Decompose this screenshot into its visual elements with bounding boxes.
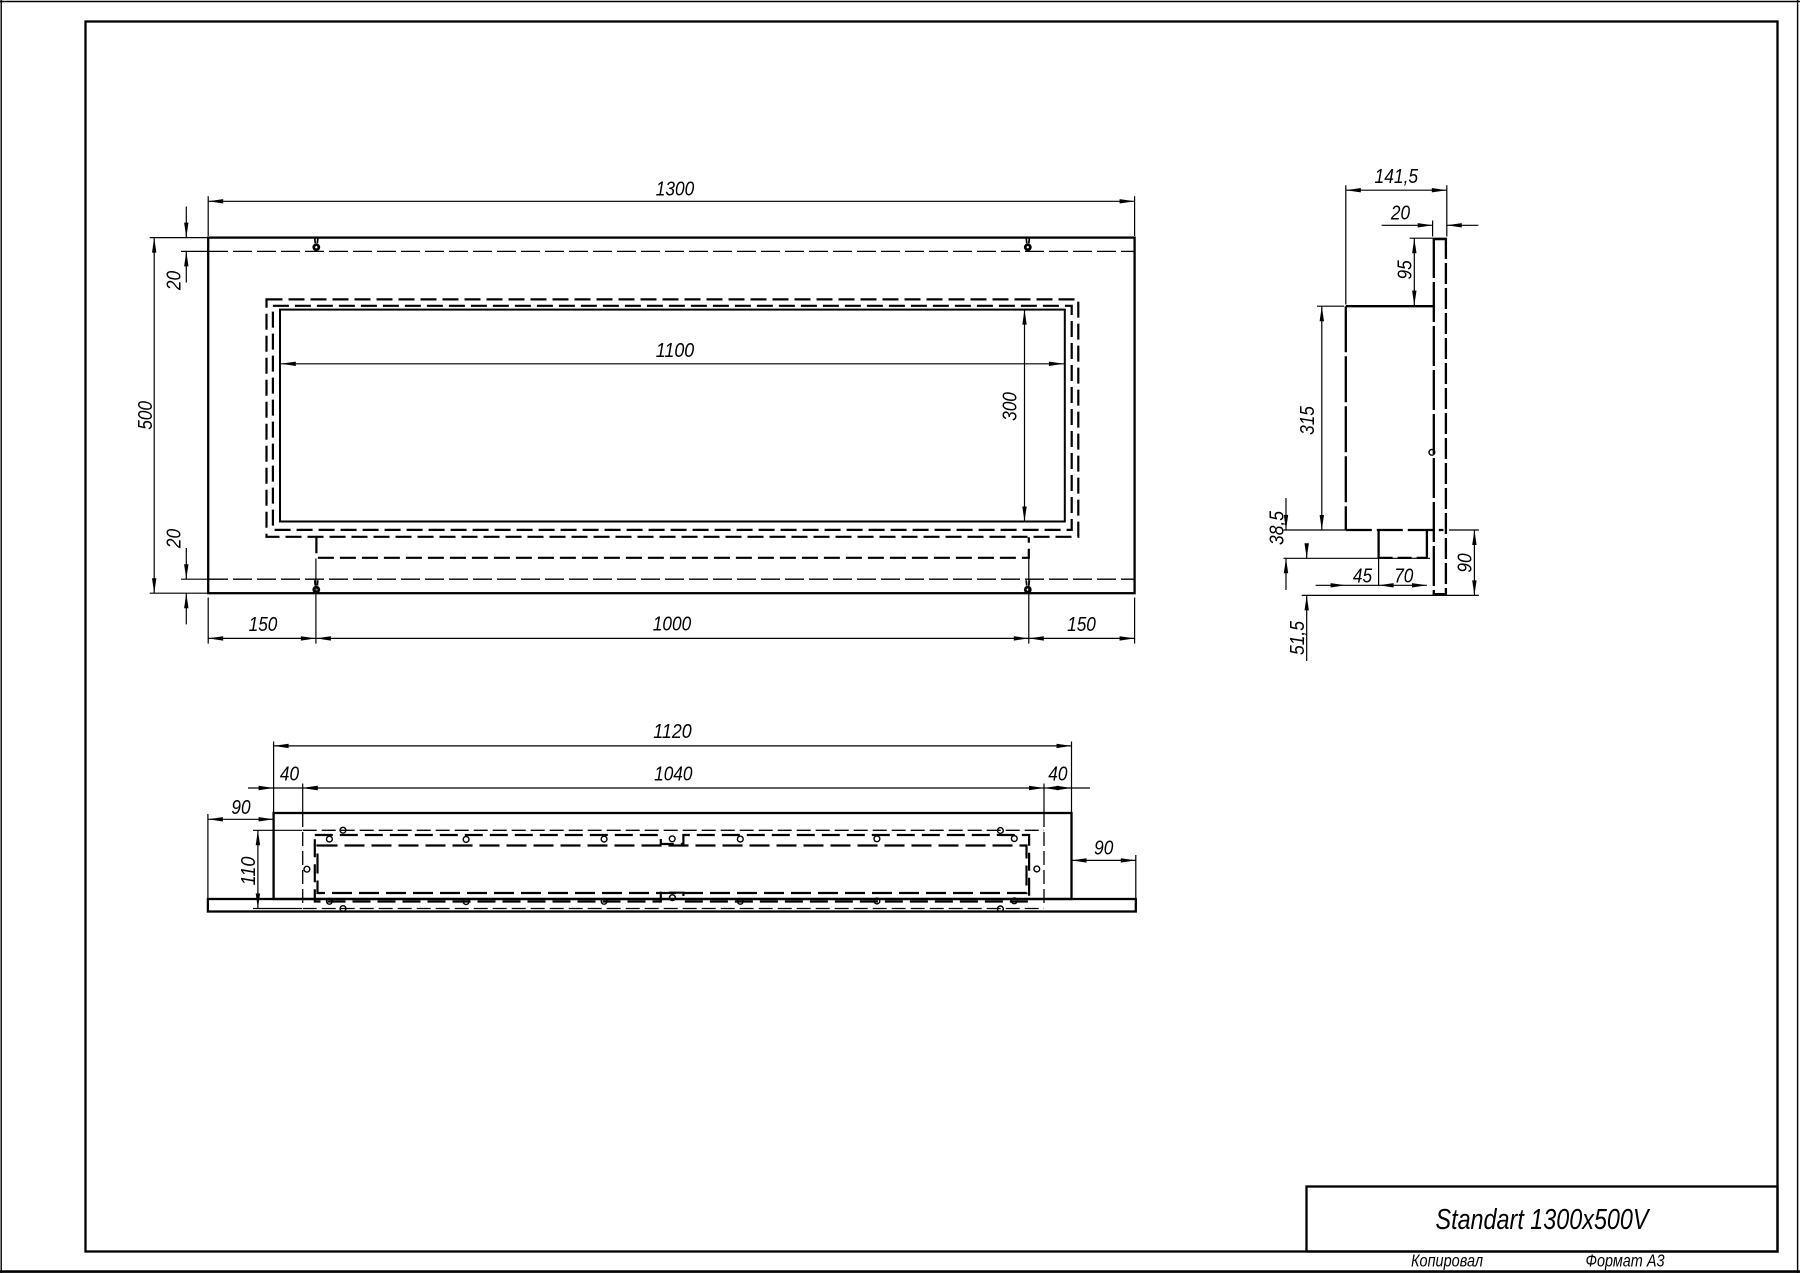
svg-text:95: 95 bbox=[1395, 260, 1417, 280]
svg-text:315: 315 bbox=[1297, 405, 1319, 435]
svg-text:Standart 1300x500V: Standart 1300x500V bbox=[1436, 1204, 1651, 1236]
svg-text:20: 20 bbox=[1390, 202, 1410, 224]
svg-text:1120: 1120 bbox=[653, 721, 691, 743]
svg-text:20: 20 bbox=[164, 529, 186, 549]
svg-text:1000: 1000 bbox=[653, 614, 691, 636]
svg-text:20: 20 bbox=[164, 271, 186, 291]
svg-text:90: 90 bbox=[231, 797, 250, 819]
svg-text:150: 150 bbox=[249, 614, 278, 636]
svg-text:51,5: 51,5 bbox=[1287, 620, 1309, 655]
svg-text:Копировал: Копировал bbox=[1411, 1251, 1483, 1271]
svg-text:90: 90 bbox=[1455, 553, 1477, 572]
svg-text:90: 90 bbox=[1094, 837, 1113, 859]
svg-text:300: 300 bbox=[1000, 392, 1022, 421]
svg-text:1100: 1100 bbox=[656, 340, 694, 362]
svg-text:38,5: 38,5 bbox=[1266, 510, 1288, 545]
svg-text:150: 150 bbox=[1067, 614, 1096, 636]
svg-text:Формат А3: Формат А3 bbox=[1586, 1251, 1665, 1271]
svg-text:1040: 1040 bbox=[654, 763, 692, 785]
svg-text:70: 70 bbox=[1394, 565, 1413, 587]
svg-text:40: 40 bbox=[280, 763, 299, 785]
svg-text:45: 45 bbox=[1353, 565, 1373, 587]
svg-text:110: 110 bbox=[238, 857, 260, 886]
svg-text:1300: 1300 bbox=[656, 179, 694, 201]
svg-text:500: 500 bbox=[135, 401, 157, 430]
svg-text:40: 40 bbox=[1048, 763, 1067, 785]
svg-text:141,5: 141,5 bbox=[1375, 166, 1419, 188]
